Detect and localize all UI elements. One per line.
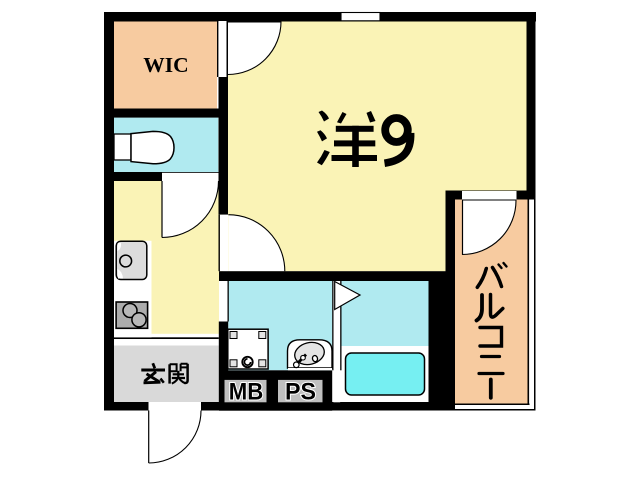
svg-text:MB: MB	[229, 379, 264, 406]
svg-text:WIC: WIC	[143, 53, 188, 77]
svg-text:PS: PS	[285, 379, 316, 406]
